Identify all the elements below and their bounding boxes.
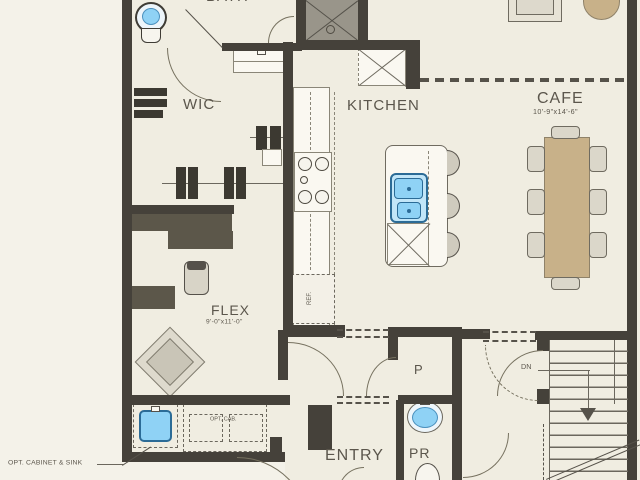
hanging-clothes [188,167,198,199]
wall [398,395,454,404]
shower-drain [326,25,335,34]
stair-arrow-line [538,370,590,371]
room-label-pantry: P [414,362,424,377]
stair-arrow-line [588,370,589,410]
sink-drain [407,187,411,191]
cased-opening [337,396,389,398]
door-leaf [185,9,223,48]
wall [222,43,302,51]
room-label-wic: WIC [183,96,215,113]
hanging-clothes [134,88,167,96]
hanging-clothes [224,167,234,199]
wall [296,0,306,45]
dining-chair [551,277,580,290]
round-table [583,0,620,20]
room-label-kitchen: KITCHEN [347,97,420,114]
room-label-powder: PR [409,445,430,461]
wall [396,400,404,480]
burner-small [300,176,308,184]
built-in-desk [168,231,233,249]
room-label-flex: FLEX [211,302,250,318]
island-stool [447,150,460,176]
toilet-seat [141,28,161,43]
wall [283,325,345,337]
cased-opening [337,329,389,331]
hanging-clothes [176,167,186,199]
dining-chair [589,189,607,215]
wall [270,437,282,462]
wall [406,43,420,89]
stair-arrow-head [580,408,596,421]
hanging-clothes [134,110,163,118]
wall [283,42,293,337]
room-dims-cafe: 10'-9"x14'-6" [533,108,578,116]
leader-line [97,464,123,465]
door-arc [268,16,294,43]
stair-rail [614,340,615,404]
dining-chair [527,189,545,215]
wall [388,327,462,337]
hanging-clothes [134,99,167,107]
cased-opening [483,331,536,333]
dining-chair [589,146,607,172]
burner [298,157,312,171]
wall [278,330,288,380]
wall [535,331,629,340]
wall [122,205,234,214]
refrigerator-label: REF. [306,292,313,305]
closet-shelf [262,149,282,166]
cased-opening [483,340,536,342]
island-stool [447,232,460,258]
hanging-clothes [236,167,246,199]
dining-chair [527,146,545,172]
opt-sink-faucet [151,406,160,412]
counter-centerline [310,214,311,270]
room-label-bath: BATH [206,0,249,5]
door-arc [338,467,364,480]
room-label-entry: ENTRY [325,447,384,465]
burner [315,190,329,204]
pr-sink-basin [412,407,438,428]
opt-sink [139,410,172,442]
door-arc [463,433,509,478]
door-arc [366,357,396,396]
pr-toilet [415,463,440,480]
sink-drain [407,209,411,213]
stairs-dn-label: DN [521,363,531,371]
wall-pier [308,405,332,450]
door-arc-dashed [485,345,538,401]
wall [358,0,368,45]
wall [122,395,290,405]
dining-chair [551,126,580,139]
wall [452,329,462,480]
cased-opening [337,336,389,338]
toilet-bowl-inner [142,8,160,25]
door-arc [167,48,221,102]
ottoman-table-inner [516,0,554,15]
cased-opening [337,402,389,404]
room-divider-dashed [420,78,628,82]
built-in-cabinet [128,286,175,309]
burner [315,157,329,171]
room-dims-flex: 9'-0"x11'-0" [206,318,243,325]
counter-centerline [310,92,311,150]
hanging-clothes [256,126,267,150]
hanging-clothes [270,126,281,150]
room-label-cafe: CAFE [537,90,584,108]
left-margin [0,0,122,480]
wall [122,0,132,462]
desk-chair-back [187,261,206,270]
built-in-desk [125,214,232,231]
floor-plan: REF. OPT. CAB. [0,0,640,480]
island-stool [447,193,460,219]
dining-chair [527,232,545,258]
door-arc [288,342,344,396]
linen-counter-edge [234,61,286,62]
opt-cabinet-sink-note: OPT. CABINET & SINK [8,459,82,466]
refrigerator-outline [291,274,335,324]
burner [298,190,312,204]
dining-chair [589,232,607,258]
wall [627,0,637,480]
understair-opening [543,424,544,480]
dining-table [544,137,590,278]
wall [388,327,398,360]
opt-cabinet-label: OPT. CAB. [210,416,237,422]
wall-pier [537,331,549,351]
